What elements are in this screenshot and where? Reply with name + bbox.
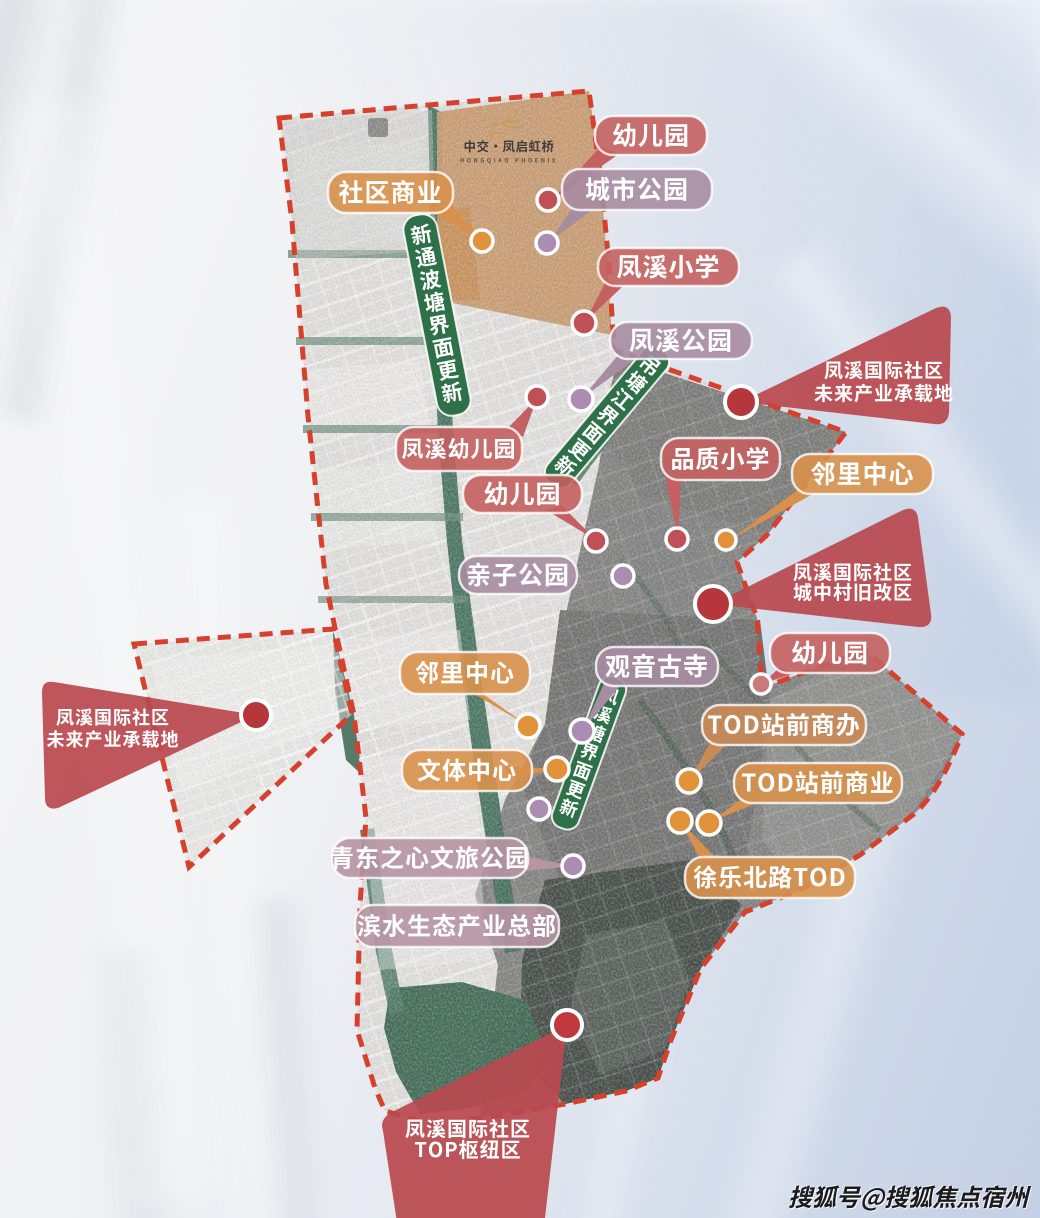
svg-text:邻里中心: 邻里中心 bbox=[810, 455, 914, 491]
svg-text:TOP枢纽区: TOP枢纽区 bbox=[414, 1134, 521, 1163]
svg-text:中交·凤启虹桥: 中交·凤启虹桥 bbox=[463, 136, 554, 155]
svg-text:邻里中心: 邻里中心 bbox=[415, 654, 515, 689]
svg-text:幼儿园: 幼儿园 bbox=[483, 475, 561, 511]
svg-text:幼儿园: 幼儿园 bbox=[791, 634, 869, 670]
svg-text:未来产业承载地: 未来产业承载地 bbox=[47, 726, 180, 752]
svg-text:城中村旧改区: 城中村旧改区 bbox=[793, 578, 913, 605]
svg-text:观音古寺: 观音古寺 bbox=[605, 648, 709, 684]
svg-text:品质小学: 品质小学 bbox=[671, 440, 771, 475]
svg-text:TOD站前商办: TOD站前商办 bbox=[707, 706, 861, 741]
svg-text:徐乐北路TOD: 徐乐北路TOD bbox=[693, 858, 847, 893]
svg-text:凤溪公园: 凤溪公园 bbox=[629, 322, 733, 358]
svg-text:亲子公园: 亲子公园 bbox=[466, 556, 570, 592]
svg-text:文体中心: 文体中心 bbox=[417, 751, 517, 786]
svg-text:HONGQIAO PHOENIX: HONGQIAO PHOENIX bbox=[460, 157, 558, 165]
svg-text:幼儿园: 幼儿园 bbox=[612, 117, 690, 153]
svg-text:社区商业: 社区商业 bbox=[338, 174, 442, 210]
svg-text:TOD站前商业: TOD站前商业 bbox=[741, 764, 895, 799]
svg-text:凤溪小学: 凤溪小学 bbox=[616, 248, 720, 284]
svg-text:滨水生态产业总部: 滨水生态产业总部 bbox=[357, 907, 557, 942]
svg-text:城市公园: 城市公园 bbox=[585, 171, 689, 207]
svg-text:凤溪幼儿园: 凤溪幼儿园 bbox=[401, 432, 516, 464]
svg-text:未来产业承载地: 未来产业承载地 bbox=[814, 379, 954, 406]
svg-text:青东之心文旅公园: 青东之心文旅公园 bbox=[330, 839, 530, 874]
